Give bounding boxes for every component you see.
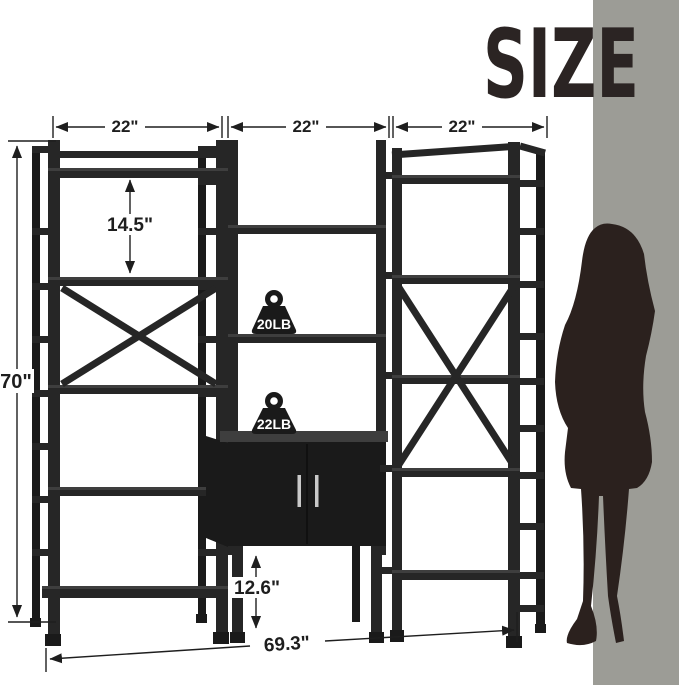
dim-label-bottom-clearance: 12.6"	[234, 578, 280, 599]
diagram-canvas: SIZE	[0, 0, 679, 685]
dim-label-left-width: 22"	[112, 117, 139, 136]
dim-label-overall-width: 69.3"	[263, 633, 310, 657]
top-rail	[48, 151, 228, 158]
page-title: SIZE	[483, 10, 639, 120]
cabinet-handle-left[interactable]	[298, 475, 302, 507]
dim-label-shelf-spacing: 14.5"	[107, 215, 153, 236]
product-size-diagram: SIZE	[0, 0, 679, 685]
dim-label-right-width: 22"	[449, 117, 476, 136]
storage-cabinet	[206, 431, 388, 547]
weight-22lb-label: 22LB	[257, 416, 291, 432]
dim-label-overall-height: 70"	[0, 371, 32, 393]
cabinet-handle-right[interactable]	[315, 475, 319, 507]
weight-20lb-label: 20LB	[257, 316, 291, 332]
dim-label-middle-width: 22"	[293, 117, 320, 136]
